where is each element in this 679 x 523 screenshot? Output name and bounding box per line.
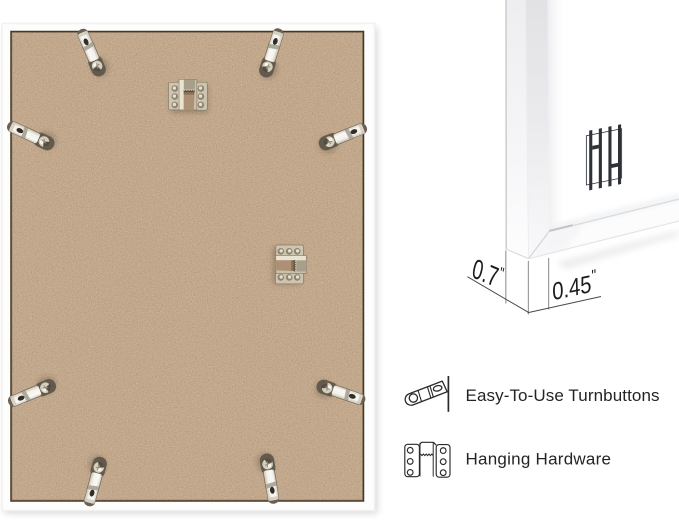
svg-text:Hanging Hardware: Hanging Hardware: [466, 450, 612, 469]
svg-text:Easy-To-Use Turnbuttons: Easy-To-Use Turnbuttons: [466, 386, 660, 405]
